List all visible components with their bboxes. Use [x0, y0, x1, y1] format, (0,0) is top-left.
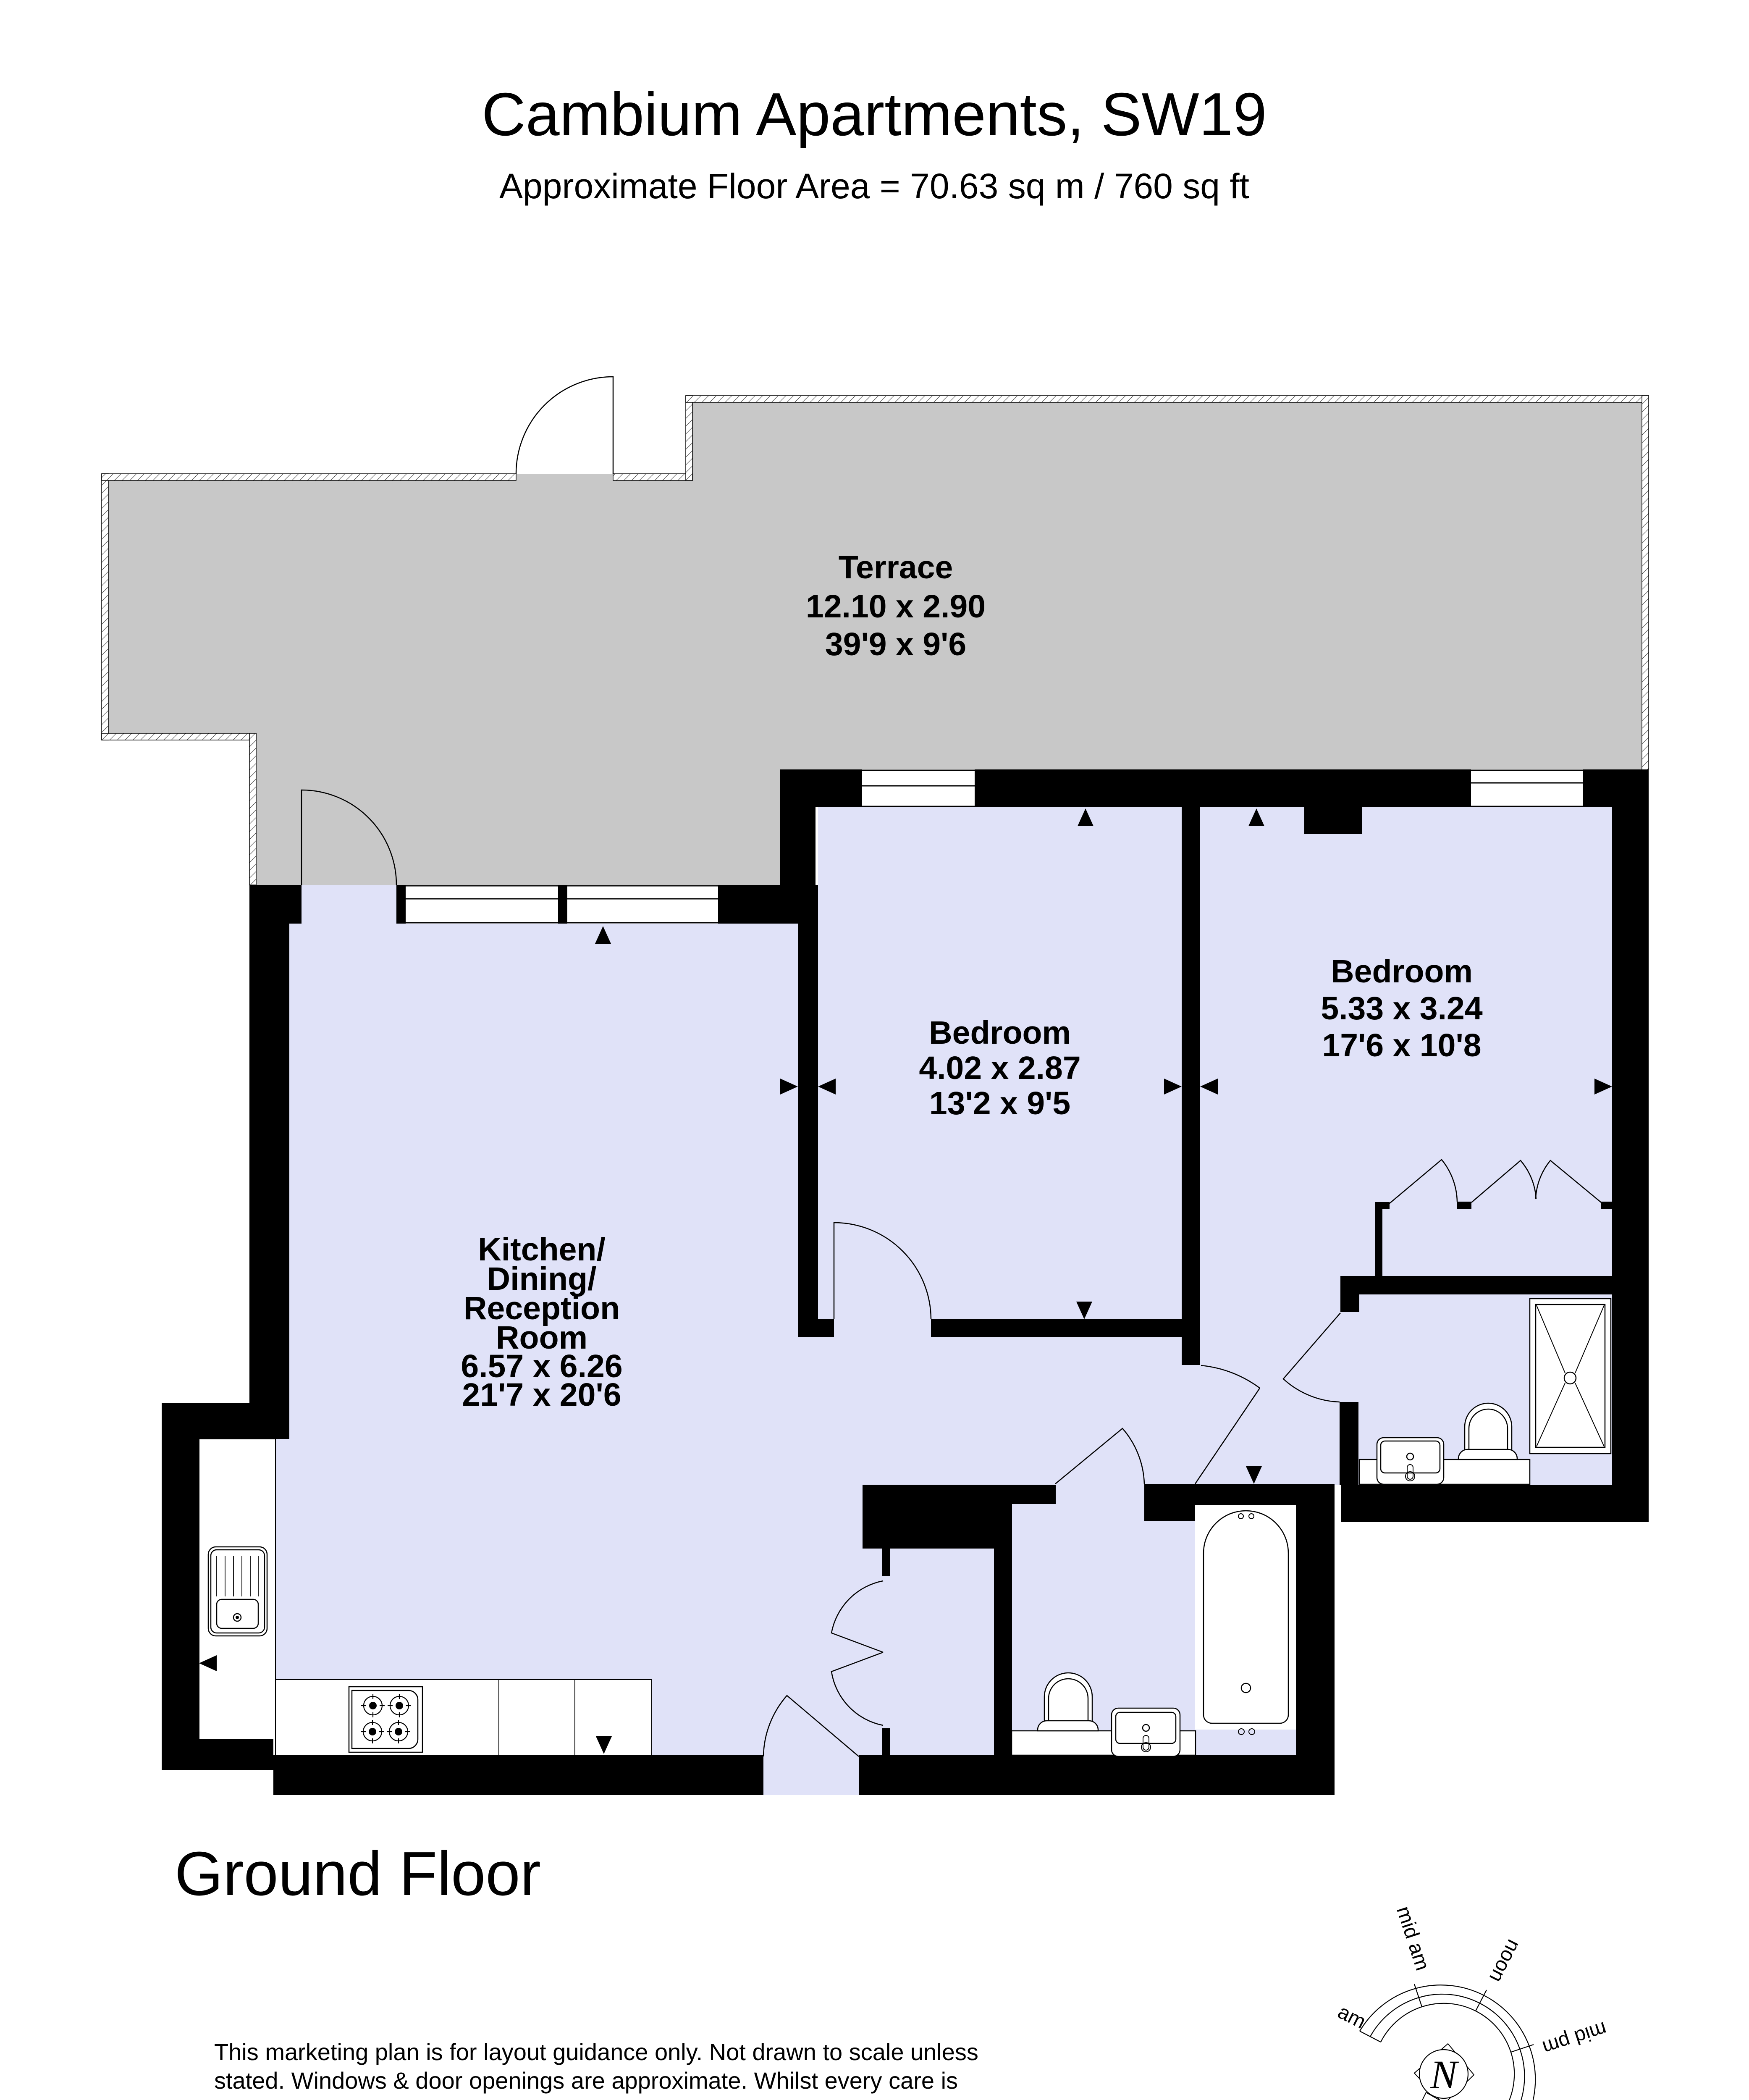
- svg-text:5.33 x 3.24: 5.33 x 3.24: [1321, 990, 1483, 1026]
- svg-text:13'2 x 9'5: 13'2 x 9'5: [929, 1085, 1070, 1121]
- svg-text:N: N: [1430, 2052, 1459, 2097]
- svg-text:Bedroom: Bedroom: [1331, 953, 1473, 990]
- svg-text:12.10 x 2.90: 12.10 x 2.90: [806, 588, 986, 625]
- svg-text:Approximate Floor Area = 70.63: Approximate Floor Area = 70.63 sq m / 76…: [499, 166, 1249, 206]
- svg-text:21'7 x 20'6: 21'7 x 20'6: [462, 1377, 621, 1413]
- svg-text:Bedroom: Bedroom: [929, 1015, 1071, 1051]
- svg-text:stated. Windows & door opening: stated. Windows & door openings are appr…: [214, 2067, 958, 2094]
- svg-text:Terrace: Terrace: [839, 549, 953, 585]
- svg-text:This marketing plan is for lay: This marketing plan is for layout guidan…: [214, 2039, 978, 2065]
- svg-text:17'6 x 10'8: 17'6 x 10'8: [1322, 1027, 1481, 1063]
- svg-text:Ground Floor: Ground Floor: [175, 1839, 541, 1908]
- svg-text:taken in the preparation of th: taken in the preparation of this plan, p…: [214, 2096, 983, 2100]
- svg-text:Cambium Apartments, SW19: Cambium Apartments, SW19: [482, 80, 1267, 148]
- svg-text:39'9 x 9'6: 39'9 x 9'6: [825, 626, 966, 662]
- svg-text:4.02 x 2.87: 4.02 x 2.87: [919, 1050, 1080, 1086]
